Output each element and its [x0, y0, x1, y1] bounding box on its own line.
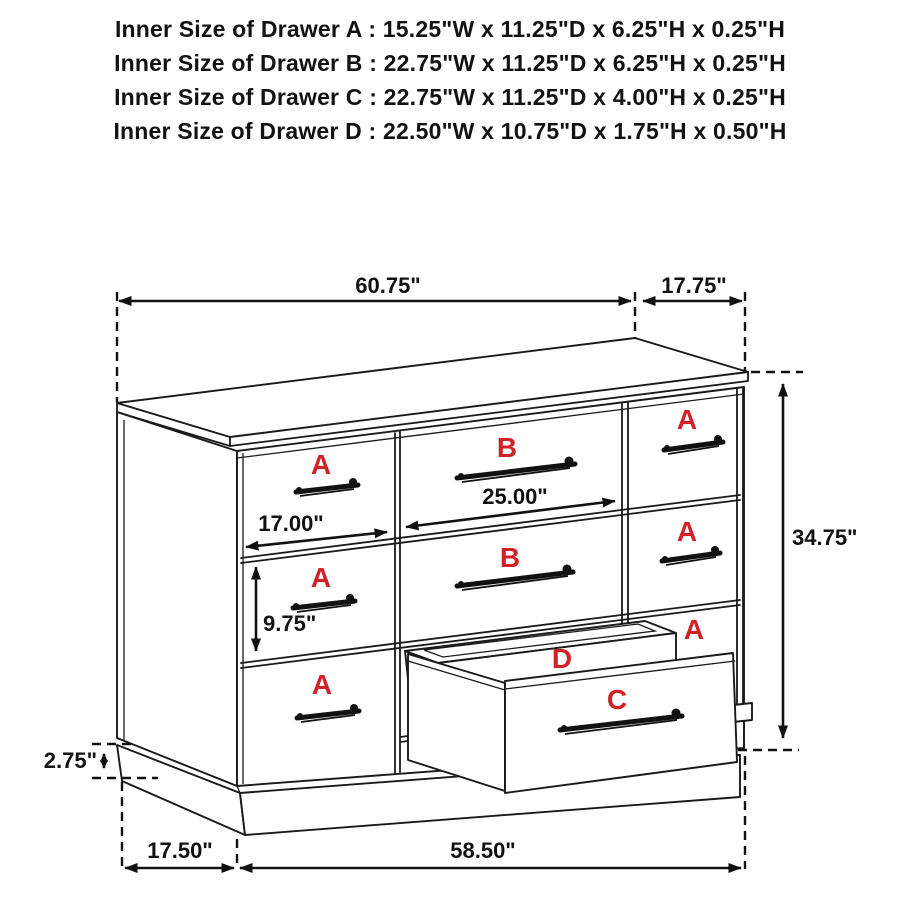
dim-drawer-b-width-label: 25.00": [482, 484, 547, 509]
drawer-label-center-middle: B: [500, 542, 520, 573]
drawer-label-center-top: B: [497, 432, 517, 463]
drawer-label-left-middle: A: [311, 562, 331, 593]
dim-overall-depth: 17.75": [643, 273, 742, 301]
dim-overall-height: 34.75": [738, 372, 857, 750]
dim-overall-height-label: 34.75": [792, 525, 857, 550]
drawer-label-right-middle: A: [677, 516, 697, 547]
dresser-dimension-sheet: Inner Size of Drawer A : 15.25"W x 11.25…: [0, 0, 900, 900]
dim-base-depth-label: 17.50": [147, 838, 212, 863]
dim-drawer-a-width-label: 17.00": [258, 511, 323, 536]
cabinet-side-panel: [117, 412, 237, 786]
dim-overall-width-label: 60.75": [355, 273, 420, 298]
drawer-label-right-bottom: A: [684, 614, 704, 645]
dim-base-width-label: 58.50": [450, 838, 515, 863]
drawer-label-tray-d: D: [552, 643, 572, 674]
dresser-diagram: A A A B B A A A D C 60.75" 17.75": [0, 0, 900, 900]
drawer-label-left-bottom: A: [312, 669, 332, 700]
dim-drawer-height-label: 9.75": [263, 611, 316, 636]
drawer-label-pulled-c: C: [607, 684, 627, 715]
drawer-label-left-top: A: [311, 449, 331, 480]
dim-overall-depth-label: 17.75": [661, 273, 726, 298]
drawer-label-right-top: A: [677, 404, 697, 435]
dim-base-height-label: 2.75": [44, 748, 97, 773]
